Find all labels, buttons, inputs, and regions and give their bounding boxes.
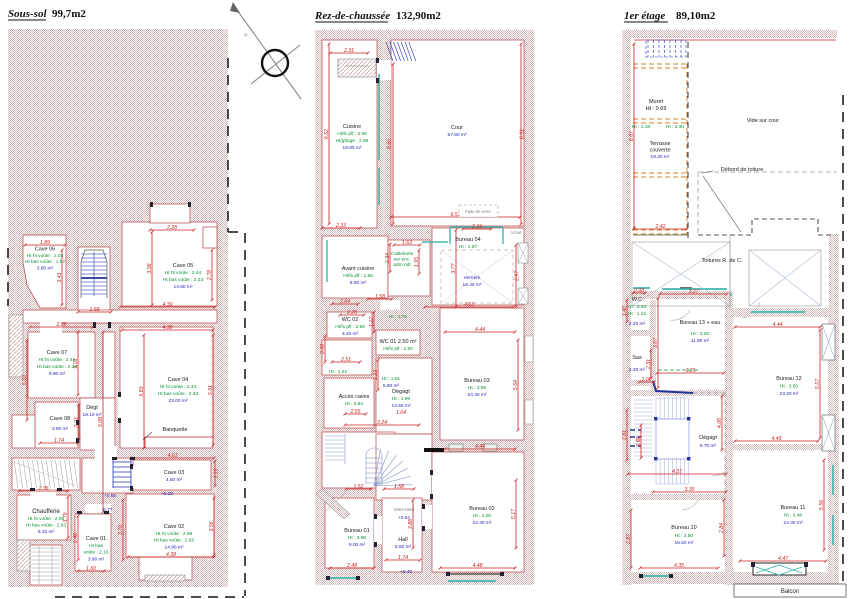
svg-text:Dégagt: Dégagt [699,435,717,441]
svg-text:1.21: 1.21 [213,468,219,478]
svg-text:Ht : 2.30: Ht : 2.30 [666,124,684,130]
svg-text:18.10 m²: 18.10 m² [83,412,102,418]
svg-text:5.60: 5.60 [22,375,28,385]
svg-text:Ht ht voûte : 2.44: Ht ht voûte : 2.44 [165,270,202,276]
svg-text:23.00 m²: 23.00 m² [169,398,188,404]
svg-text:couverte: couverte [649,148,670,154]
svg-text:132,90m2: 132,90m2 [396,10,441,22]
svg-text:Avant cuisine: Avant cuisine [342,266,375,272]
svg-text:3.90 m²: 3.90 m² [52,426,69,432]
svg-text:Bureau 03: Bureau 03 [464,378,489,384]
svg-text:2.20 m²: 2.20 m² [629,367,646,373]
svg-text:sur enc.: sur enc. [393,257,410,263]
svg-text:1.58: 1.58 [89,307,99,313]
svg-text:Ht bas voûte : 2.33: Ht bas voûte : 2.33 [163,277,204,283]
svg-text:1.58: 1.58 [394,484,404,490]
svg-text:19.20 m²: 19.20 m² [651,154,670,160]
svg-text:2.31: 2.31 [646,359,652,370]
svg-text:Cave 02: Cave 02 [164,524,185,530]
svg-text:Ht/fx plf : 2.58: Ht/fx plf : 2.58 [335,324,365,330]
svg-text:Volet métal: Volet métal [394,507,415,512]
svg-text:6.10 m²: 6.10 m² [38,529,55,535]
svg-text:11.90 m²: 11.90 m² [691,338,710,344]
svg-text:Accès caves: Accès caves [339,394,370,400]
svg-text:14.90 m²: 14.90 m² [165,545,184,551]
svg-text:4.38: 4.38 [162,325,172,331]
svg-text:3.24: 3.24 [377,420,387,426]
svg-text:0.88: 0.88 [636,436,642,446]
svg-text:0.98: 0.98 [320,344,326,354]
svg-text:4.44: 4.44 [475,444,485,450]
svg-text:6.62: 6.62 [324,129,330,139]
svg-text:Ht ht voûte : 2.95: Ht ht voûte : 2.95 [28,516,65,522]
svg-text:9.70 m²: 9.70 m² [700,443,717,449]
svg-text:2.84: 2.84 [719,523,725,534]
svg-text:2.55: 2.55 [349,409,360,415]
svg-text:4.50 m²: 4.50 m² [166,477,183,483]
svg-text:Cour: Cour [451,125,463,131]
svg-text:1.58: 1.58 [375,294,385,300]
svg-text:2.97: 2.97 [514,270,520,282]
svg-text:Cave 06: Cave 06 [35,247,56,253]
svg-text:5.80 m²: 5.80 m² [37,266,54,272]
svg-text:5.57: 5.57 [815,378,821,389]
svg-text:+0.58: +0.58 [104,493,116,499]
svg-text:8.60 m²: 8.60 m² [350,280,367,286]
svg-text:WC 02: WC 02 [342,317,359,323]
svg-text:2.34: 2.34 [385,253,391,264]
svg-text:22.30 m²: 22.30 m² [473,520,492,526]
svg-text:4.49: 4.49 [771,436,781,442]
svg-text:Terrasse: Terrasse [649,141,670,147]
svg-text:Ht bas voûte : 2.30: Ht bas voûte : 2.30 [37,364,78,370]
svg-text:W.C: W.C [632,297,642,303]
svg-text:2.58: 2.58 [55,322,66,328]
svg-text:4.61: 4.61 [167,453,177,459]
svg-text:Bureau 10: Bureau 10 [671,525,696,531]
svg-text:2.33: 2.33 [335,223,346,229]
svg-text:Ht : 1.97: Ht : 1.97 [459,244,477,250]
svg-text:Verrière: Verrière [464,275,481,281]
svg-text:Ht : 3.33: Ht : 3.33 [628,304,646,310]
svg-text:Bureau 13 + eau: Bureau 13 + eau [680,320,721,326]
svg-text:Ht bas voûte : 2.33: Ht bas voûte : 2.33 [158,391,199,397]
svg-text:Ht : 1.91: Ht : 1.91 [382,376,400,382]
svg-text:Cave 08: Cave 08 [50,416,71,422]
svg-text:1.23: 1.23 [373,370,379,380]
svg-text:Banquette: Banquette [162,427,187,433]
svg-text:Ht ht voûte : 2.43: Ht ht voûte : 2.43 [160,384,197,390]
svg-text:Ht bas voûte : 1.87: Ht bas voûte : 1.87 [25,259,66,265]
svg-text:Rez-de-chaussée: Rez-de-chaussée [314,10,390,22]
svg-text:Cave 05: Cave 05 [173,263,194,269]
svg-text:2.78: 2.78 [207,270,213,281]
svg-text:Sous-sol: Sous-sol [8,8,47,20]
svg-text:5.50 m²: 5.50 m² [395,544,412,550]
svg-text:4.48: 4.48 [472,563,482,569]
svg-text:Bureau 12: Bureau 12 [776,376,801,382]
svg-text:+0.40: +0.40 [400,569,412,575]
svg-text:1.60: 1.60 [86,566,96,572]
svg-text:3.25: 3.25 [685,368,695,374]
svg-text:4.63: 4.63 [464,302,474,308]
svg-text:4.44: 4.44 [475,327,485,333]
svg-text:Ht : 3.98: Ht : 3.98 [348,535,366,541]
svg-text:4.06: 4.06 [717,418,723,428]
svg-text:2.20: 2.20 [346,310,357,316]
svg-text:Ht bas: Ht bas [89,543,103,549]
svg-text:1.89: 1.89 [40,240,50,246]
svg-text:4.47: 4.47 [778,556,789,562]
svg-text:99,7m2: 99,7m2 [52,8,86,20]
svg-text:+0.54: +0.54 [398,515,410,521]
svg-text:+0.20: +0.20 [161,491,173,497]
svg-text:5.17: 5.17 [511,508,517,519]
svg-text:23.20 m²: 23.20 m² [780,391,799,397]
svg-text:3.56: 3.56 [209,521,215,531]
svg-text:8.91: 8.91 [520,129,526,139]
svg-text:Chaufferie: Chaufferie [32,509,60,515]
svg-text:2.48: 2.48 [73,533,79,544]
svg-text:14.50 m²: 14.50 m² [392,403,411,409]
svg-text:Bureau 11: Bureau 11 [781,505,806,511]
svg-text:1.22: 1.22 [369,317,375,327]
svg-text:89,10m2: 89,10m2 [676,10,716,22]
svg-text:Bureau 02: Bureau 02 [469,506,494,512]
svg-text:Cave 03: Cave 03 [164,470,185,476]
svg-text:Vide sur cour: Vide sur cour [747,118,779,124]
svg-text:1.74: 1.74 [54,438,64,444]
svg-text:16.40 m²: 16.40 m² [463,282,482,288]
svg-text:Ht : 1.12: Ht : 1.12 [628,311,646,317]
svg-text:4.44: 4.44 [772,322,782,328]
svg-text:Cave 04: Cave 04 [168,377,189,383]
svg-text:Sas: Sas [632,355,642,361]
svg-text:Dégagt: Dégagt [392,389,410,395]
svg-text:Ht : 1.18: Ht : 1.18 [632,124,650,130]
svg-text:Ht bas voûte : 2.92: Ht bas voûte : 2.92 [154,538,195,544]
svg-text:Ht : 2.64: Ht : 2.64 [345,401,363,407]
svg-text:0.98: 0.98 [634,288,644,294]
svg-text:2.19: 2.19 [471,224,482,230]
svg-text:Ht : 3.50: Ht : 3.50 [780,384,798,390]
svg-text:Ht : 0.69: Ht : 0.69 [646,106,667,112]
svg-text:24.40 m²: 24.40 m² [468,392,487,398]
svg-text:V.met: V.met [511,230,522,235]
svg-text:1.74: 1.74 [398,555,408,561]
svg-text:1.95: 1.95 [414,257,420,267]
svg-text:Débord de toiture: Débord de toiture [721,167,764,173]
svg-text:1er étage: 1er étage [624,10,665,22]
svg-text:3.70: 3.70 [118,525,124,535]
svg-text:24.30 m²: 24.30 m² [784,520,803,526]
svg-text:Toitures R. de C.: Toitures R. de C. [702,258,743,264]
svg-text:Ht : 1.22: Ht : 1.22 [329,369,347,375]
svg-text:2.42: 2.42 [654,224,665,230]
svg-text:5.61: 5.61 [208,385,214,395]
svg-text:Ht bas voûte : 2.83: Ht bas voûte : 2.83 [26,523,67,529]
svg-text:Ht : 3.50: Ht : 3.50 [675,533,693,539]
svg-text:Ht : 1.75: Ht : 1.75 [389,314,407,320]
svg-text:Bureau 01: Bureau 01 [344,528,369,534]
svg-text:5.56: 5.56 [819,500,825,510]
svg-text:Caillebotis: Caillebotis [391,251,414,257]
svg-text:Cuisine: Cuisine [343,124,361,130]
svg-text:Cave 07: Cave 07 [47,350,68,356]
svg-text:9.90 m²: 9.90 m² [49,371,66,377]
svg-text:Ht ht voûte : 2.99: Ht ht voûte : 2.99 [156,531,193,537]
svg-text:Ht ht voûte : 2.41: Ht ht voûte : 2.41 [39,357,76,363]
svg-text:Ht/gîtage : 2.86: Ht/gîtage : 2.86 [336,138,369,144]
svg-text:adm ndt: adm ndt [393,262,411,268]
svg-text:3.77: 3.77 [451,262,457,273]
svg-text:5.64: 5.64 [513,380,519,390]
svg-text:3.10 m²: 3.10 m² [342,331,359,337]
svg-text:14.60 m²: 14.60 m² [174,284,193,290]
svg-text:Hall: Hall [398,537,407,543]
svg-text:Bureau 04: Bureau 04 [455,237,480,243]
svg-text:voûte : 2.16: voûte : 2.16 [83,550,108,556]
svg-text:Faitv de verre: Faitv de verre [465,209,491,214]
svg-text:4.38: 4.38 [166,552,176,558]
svg-text:Muret: Muret [649,99,664,105]
svg-text:2.31: 2.31 [343,48,354,54]
svg-text:Ht/fx plf : 2.68: Ht/fx plf : 2.68 [337,131,367,137]
svg-text:Ht/fx plf : 2.68: Ht/fx plf : 2.68 [343,273,373,279]
svg-text:4.39: 4.39 [162,302,172,308]
svg-text:Cave 01: Cave 01 [86,536,107,542]
svg-text:8.66: 8.66 [386,139,392,149]
svg-text:2.64: 2.64 [339,299,350,305]
svg-text:Ht : 3.26: Ht : 3.26 [691,331,709,337]
svg-text:4.37: 4.37 [672,469,683,475]
svg-text:2.20 m²: 2.20 m² [629,321,646,327]
svg-text:Ht : 3.48: Ht : 3.48 [784,513,802,519]
svg-text:3.67: 3.67 [653,337,659,348]
svg-text:3.41: 3.41 [57,272,63,282]
svg-text:Ht ht voûte : 2.03: Ht ht voûte : 2.03 [27,253,64,259]
svg-text:2.28: 2.28 [166,225,177,231]
svg-text:57.60 m²: 57.60 m² [448,132,467,138]
svg-text:3.98: 3.98 [147,263,153,273]
svg-text:5.83: 5.83 [139,386,145,396]
svg-text:18.80 m²: 18.80 m² [343,145,362,151]
svg-text:Ht : 3.99: Ht : 3.99 [468,385,486,391]
svg-text:4.35: 4.35 [674,563,684,569]
svg-text:1.40: 1.40 [622,306,628,316]
svg-text:2.48: 2.48 [346,563,357,569]
svg-text:2.81: 2.81 [622,430,628,441]
svg-text:2.87: 2.87 [626,533,632,545]
svg-text:3.35: 3.35 [684,487,694,493]
svg-text:8.67: 8.67 [629,130,635,141]
svg-text:Dégt: Dégt [86,405,98,411]
svg-text:2.36: 2.36 [37,486,48,492]
svg-text:2.51: 2.51 [340,357,351,363]
svg-text:Balcon: Balcon [781,589,799,595]
svg-text:1.63: 1.63 [402,240,412,246]
svg-text:15.60 m²: 15.60 m² [675,540,694,546]
svg-text:Ht/fx plf : 2.60: Ht/fx plf : 2.60 [383,346,413,352]
svg-text:9.08: 9.08 [98,417,104,427]
svg-text:3.90 m²: 3.90 m² [88,557,105,563]
svg-text:3.27: 3.27 [688,289,699,295]
svg-text:1.00: 1.00 [641,377,651,383]
svg-text:9.00 m²: 9.00 m² [349,542,366,548]
svg-text:Ht : 4.00: Ht : 4.00 [473,513,491,519]
svg-text:1.64: 1.64 [396,410,406,416]
svg-text:WC 01 2.50 m²: WC 01 2.50 m² [380,339,417,345]
svg-text:1.52: 1.52 [353,484,363,490]
svg-text:Ht : 1.99: Ht : 1.99 [392,396,410,402]
